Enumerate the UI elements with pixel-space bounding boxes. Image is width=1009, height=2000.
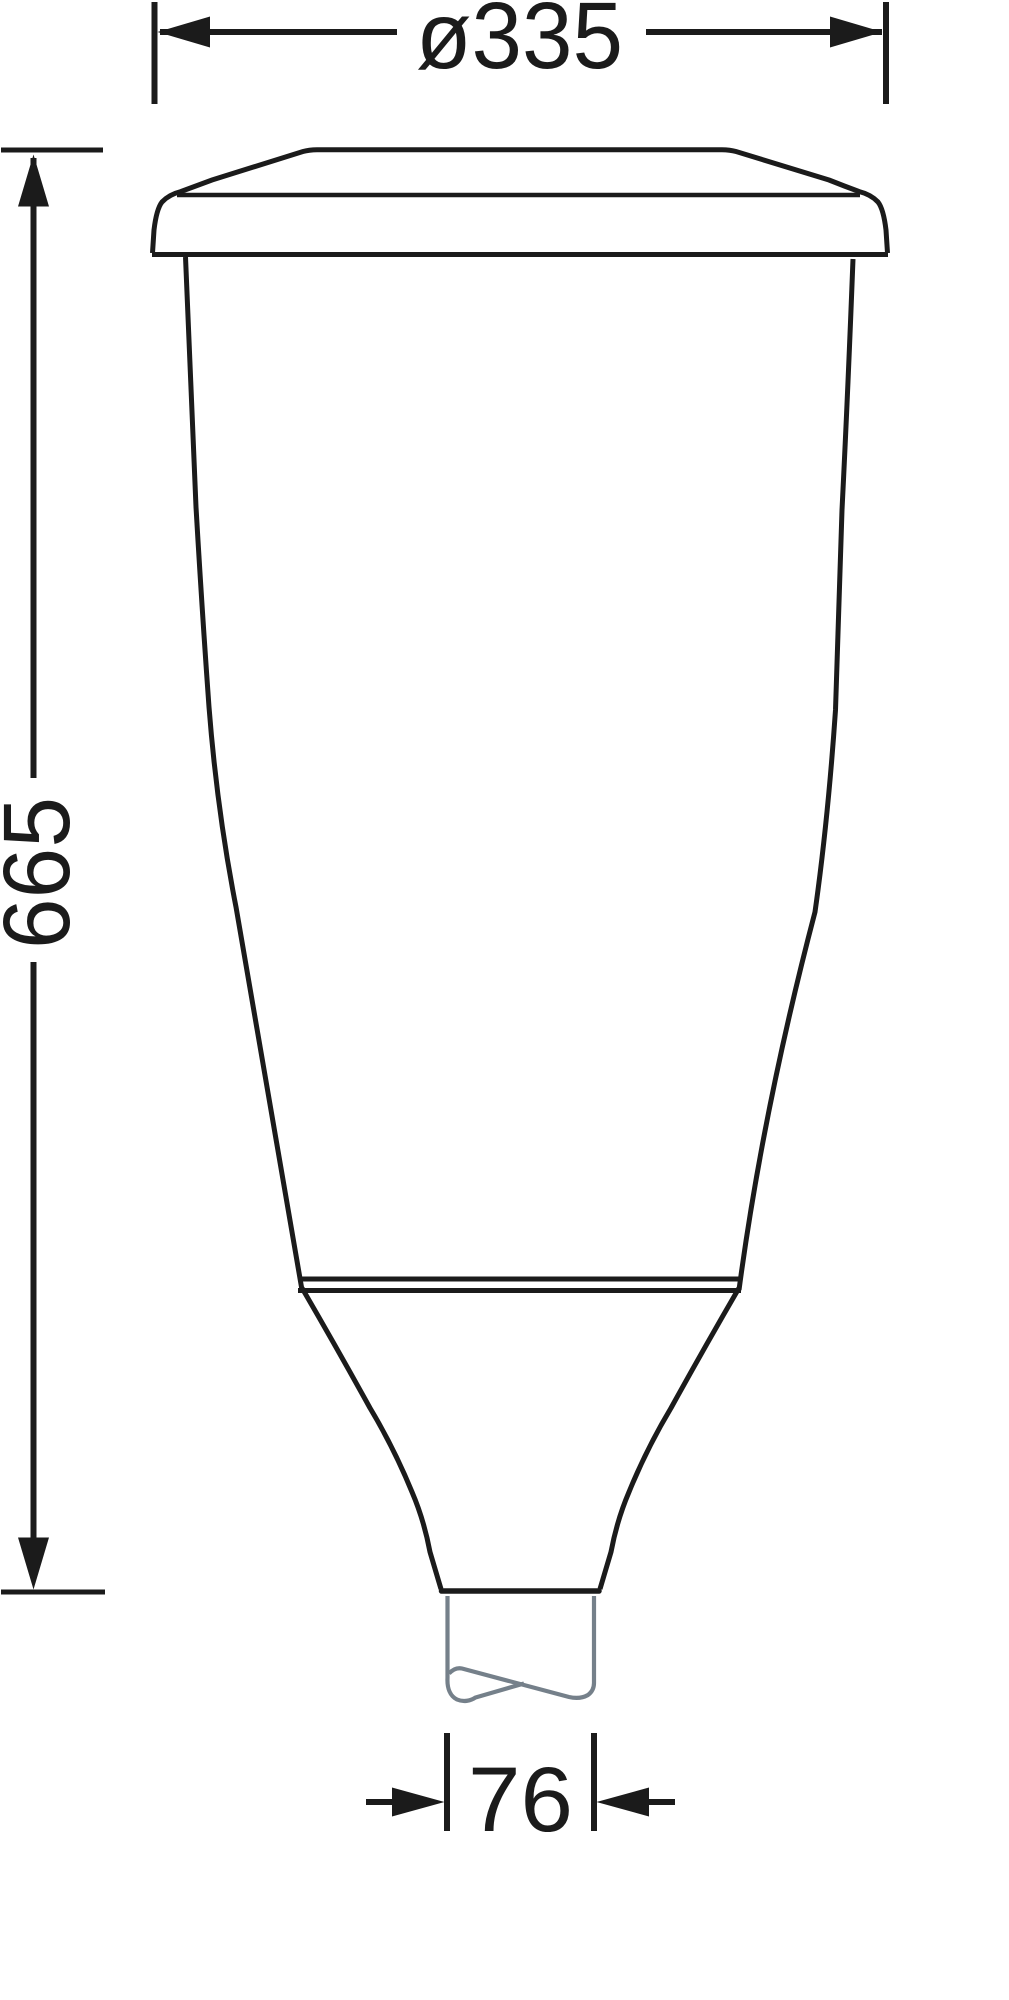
svg-text:76: 76 bbox=[468, 1749, 573, 1851]
svg-text:665: 665 bbox=[0, 797, 90, 949]
svg-text:ø335: ø335 bbox=[416, 0, 623, 89]
